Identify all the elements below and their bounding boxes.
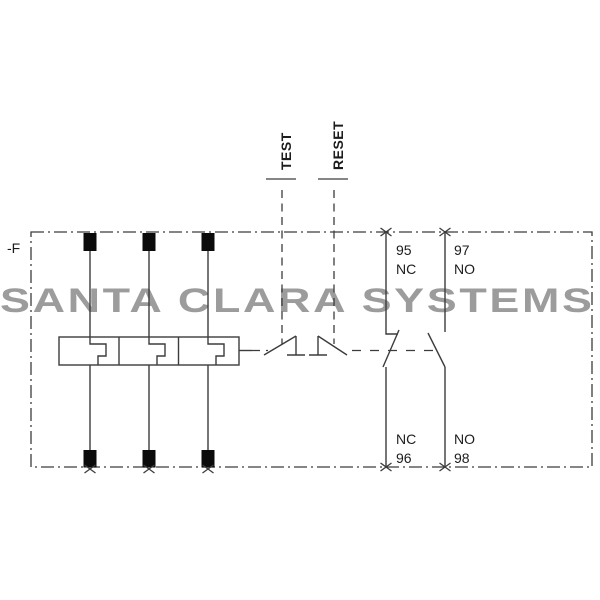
nc-contact-blade	[383, 330, 399, 367]
reset-button-symbol	[309, 336, 347, 355]
overload-relay-schematic: -F TEST RESET 95 NC 97 NO NC 96 NO 98	[0, 0, 600, 600]
power-terminal-top-2	[143, 233, 156, 251]
reset-control	[309, 179, 348, 355]
power-terminal-top-1	[84, 233, 97, 251]
contact-type-nc-bottom: NC	[396, 431, 416, 447]
reset-button-label: RESET	[330, 121, 346, 170]
thermal-overload-block	[59, 337, 252, 365]
main-pole-2	[143, 233, 166, 473]
main-pole-1	[84, 233, 107, 473]
test-control	[264, 179, 305, 355]
power-terminal-bottom-1	[84, 450, 97, 468]
main-pole-3	[202, 233, 225, 473]
thermal-element-1	[90, 337, 106, 365]
power-terminal-bottom-2	[143, 450, 156, 468]
enclosure-boundary	[31, 232, 592, 467]
no-aux-contact	[428, 228, 451, 471]
schematic-page: SANTA CLARA SYSTEMS	[0, 0, 600, 600]
test-button-symbol	[264, 336, 305, 355]
power-terminal-top-3	[202, 233, 215, 251]
contact-type-no-bottom: NO	[454, 431, 475, 447]
terminal-number-97: 97	[454, 242, 470, 258]
contact-type-nc-top: NC	[396, 261, 416, 277]
test-button-label: TEST	[278, 132, 294, 170]
terminal-number-95: 95	[396, 242, 412, 258]
terminal-number-98: 98	[454, 450, 470, 466]
thermal-element-3	[208, 337, 224, 365]
device-designation-label: -F	[7, 240, 20, 256]
terminal-number-96: 96	[396, 450, 412, 466]
thermal-element-2	[149, 337, 165, 365]
power-terminal-bottom-3	[202, 450, 215, 468]
contact-type-no-top: NO	[454, 261, 475, 277]
